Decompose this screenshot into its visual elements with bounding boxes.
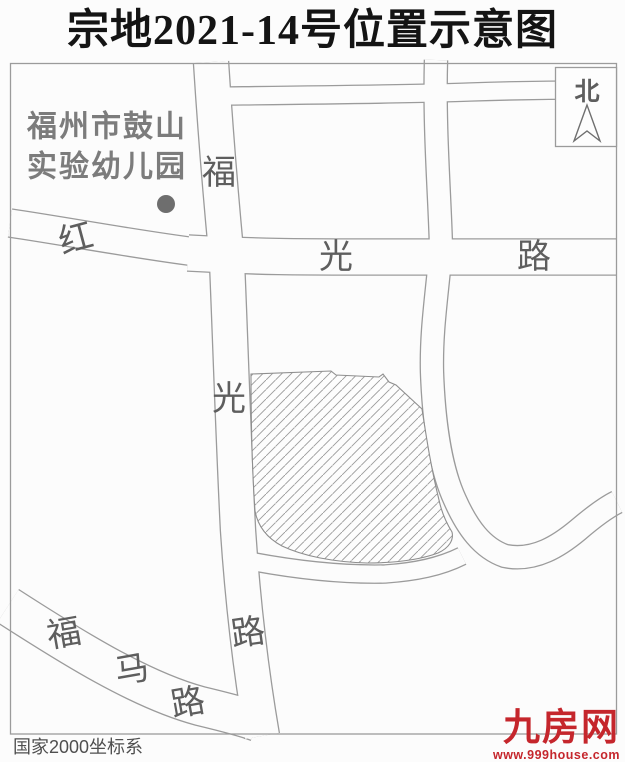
map-canvas: 北 福州市鼓山 实验幼儿园 红 光 路 福 光 路 福 马 路 国家2000坐标… — [0, 0, 625, 762]
road-hongguang-main — [188, 253, 617, 257]
road-hongguang — [10, 223, 196, 252]
road-label-hongguang-char2: 路 — [517, 238, 551, 276]
poi-label-line1: 福州市鼓山 — [26, 110, 187, 144]
poi-label-line2: 实验幼儿园 — [27, 150, 187, 184]
road-label-fuguang-char1: 光 — [212, 380, 246, 418]
road-label-fuguang-char0: 福 — [202, 154, 236, 192]
north-box: 北 — [556, 68, 617, 147]
poi-marker-dot — [157, 195, 175, 213]
north-label: 北 — [574, 78, 599, 106]
road-label-fuguang-char2: 路 — [229, 612, 268, 654]
brand-url: www.999house.com — [493, 749, 620, 762]
road-label-fuma-char0: 福 — [44, 612, 84, 655]
watermark-logo: 九房网 www.999house.com — [493, 710, 620, 762]
brand-logo: 九房网 — [493, 709, 620, 747]
location-sketch-page: 宗地2021-14号位置示意图 — [0, 0, 625, 762]
road-label-fuma-char2: 路 — [168, 681, 208, 724]
road-label-fuma-char1: 马 — [112, 648, 152, 691]
road-label-hongguang-char1: 光 — [319, 238, 353, 276]
coordinate-note: 国家2000坐标系 — [13, 737, 143, 757]
road-top — [228, 90, 590, 96]
